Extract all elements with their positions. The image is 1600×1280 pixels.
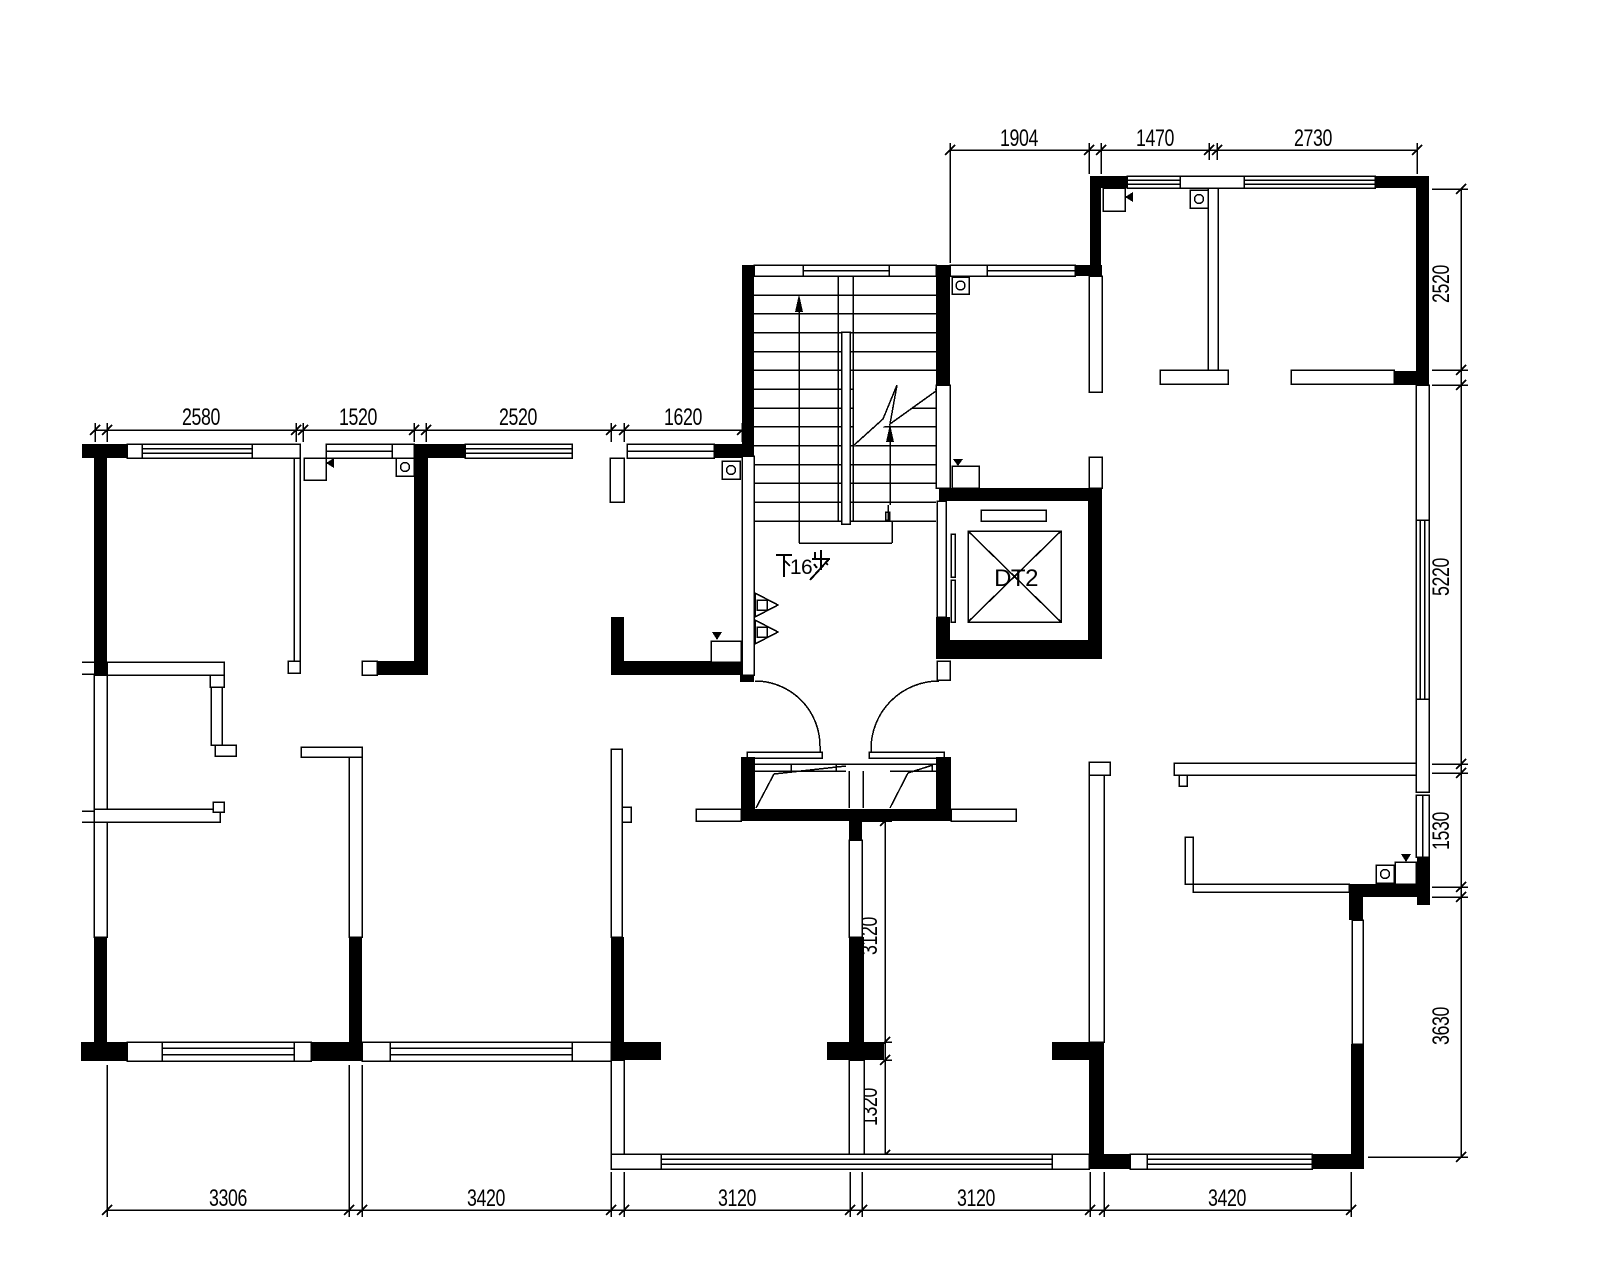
svg-text:3120: 3120 [718,1185,756,1212]
svg-text:1470: 1470 [1136,125,1174,152]
svg-text:1520: 1520 [339,404,377,431]
svg-text:3120: 3120 [957,1185,995,1212]
svg-text:5220: 5220 [1428,558,1455,596]
svg-text:2520: 2520 [499,404,537,431]
svg-text:1620: 1620 [664,404,702,431]
svg-text:3420: 3420 [1208,1185,1246,1212]
svg-text:16: 16 [790,556,812,579]
svg-text:1530: 1530 [1428,812,1455,850]
svg-text:3630: 3630 [1428,1007,1455,1045]
svg-text:1904: 1904 [1000,125,1038,152]
svg-text:DT2: DT2 [994,565,1038,592]
svg-text:3306: 3306 [209,1185,247,1212]
svg-text:2520: 2520 [1428,265,1455,303]
svg-text:2580: 2580 [182,404,220,431]
svg-text:2730: 2730 [1294,125,1332,152]
svg-text:3420: 3420 [467,1185,505,1212]
